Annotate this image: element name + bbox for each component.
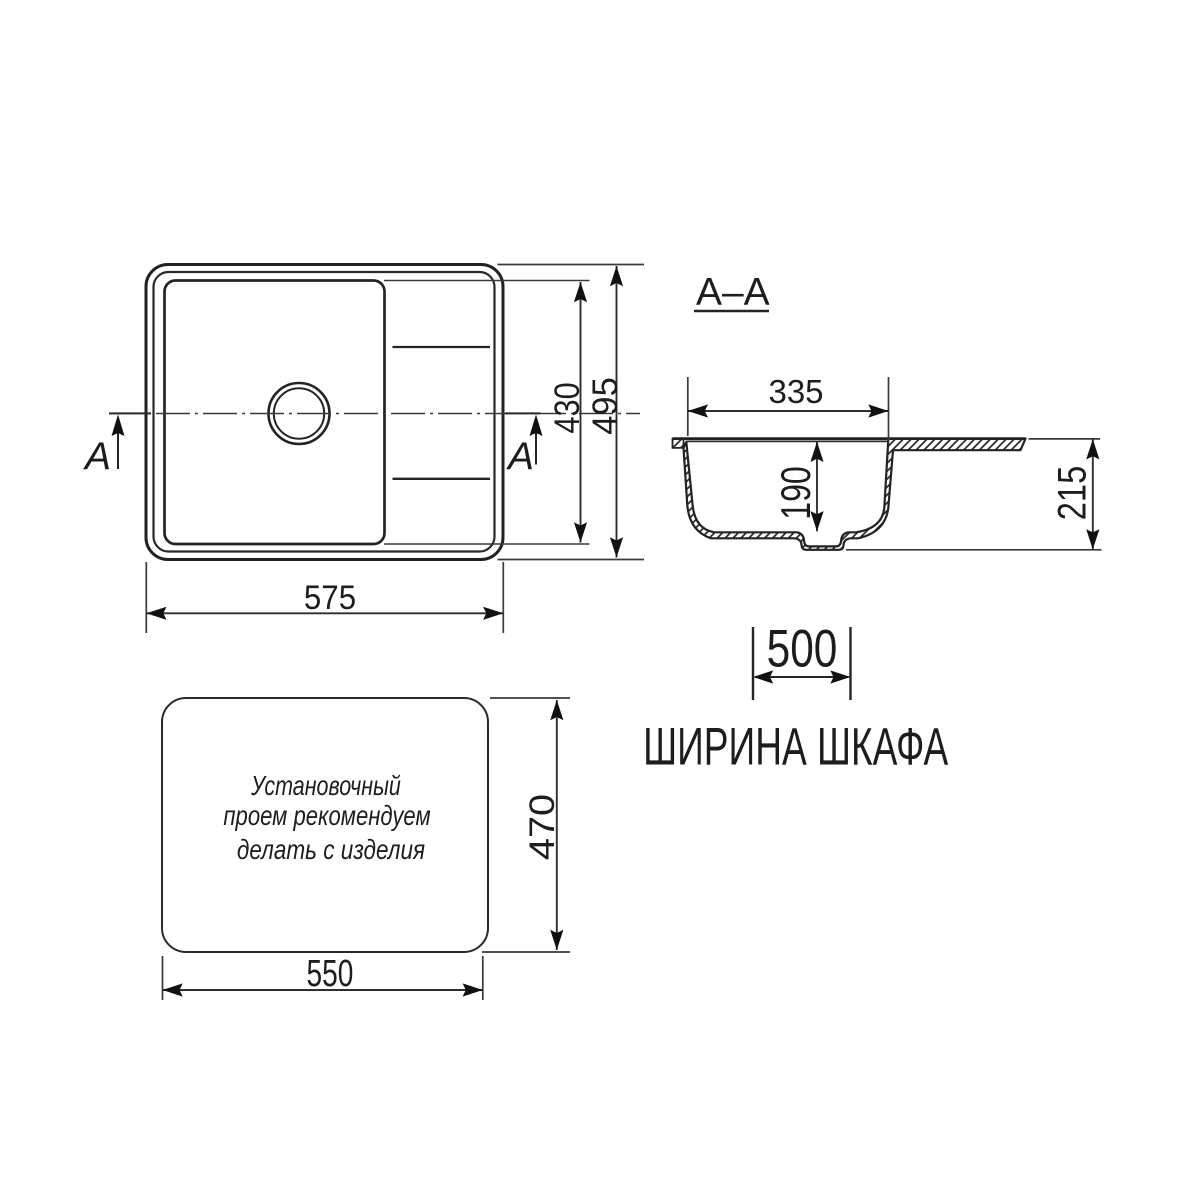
svg-text:470: 470 bbox=[522, 794, 562, 860]
svg-text:Установочный: Установочный bbox=[250, 770, 401, 801]
svg-text:A: A bbox=[83, 436, 111, 479]
svg-text:335: 335 bbox=[768, 373, 823, 410]
svg-text:проем рекомендуем: проем рекомендуем bbox=[223, 801, 430, 832]
svg-text:ШИРИНА ШКАФА: ШИРИНА ШКАФА bbox=[643, 717, 949, 776]
svg-text:500: 500 bbox=[767, 620, 838, 679]
svg-text:делать с изделия: делать с изделия bbox=[237, 835, 426, 866]
svg-text:A: A bbox=[506, 436, 534, 479]
svg-text:550: 550 bbox=[307, 953, 354, 995]
svg-text:430: 430 bbox=[547, 382, 586, 433]
svg-text:215: 215 bbox=[1049, 466, 1094, 520]
svg-text:A–A: A–A bbox=[696, 271, 770, 314]
svg-text:495: 495 bbox=[587, 377, 625, 434]
svg-text:575: 575 bbox=[304, 578, 356, 617]
svg-text:190: 190 bbox=[772, 466, 819, 520]
